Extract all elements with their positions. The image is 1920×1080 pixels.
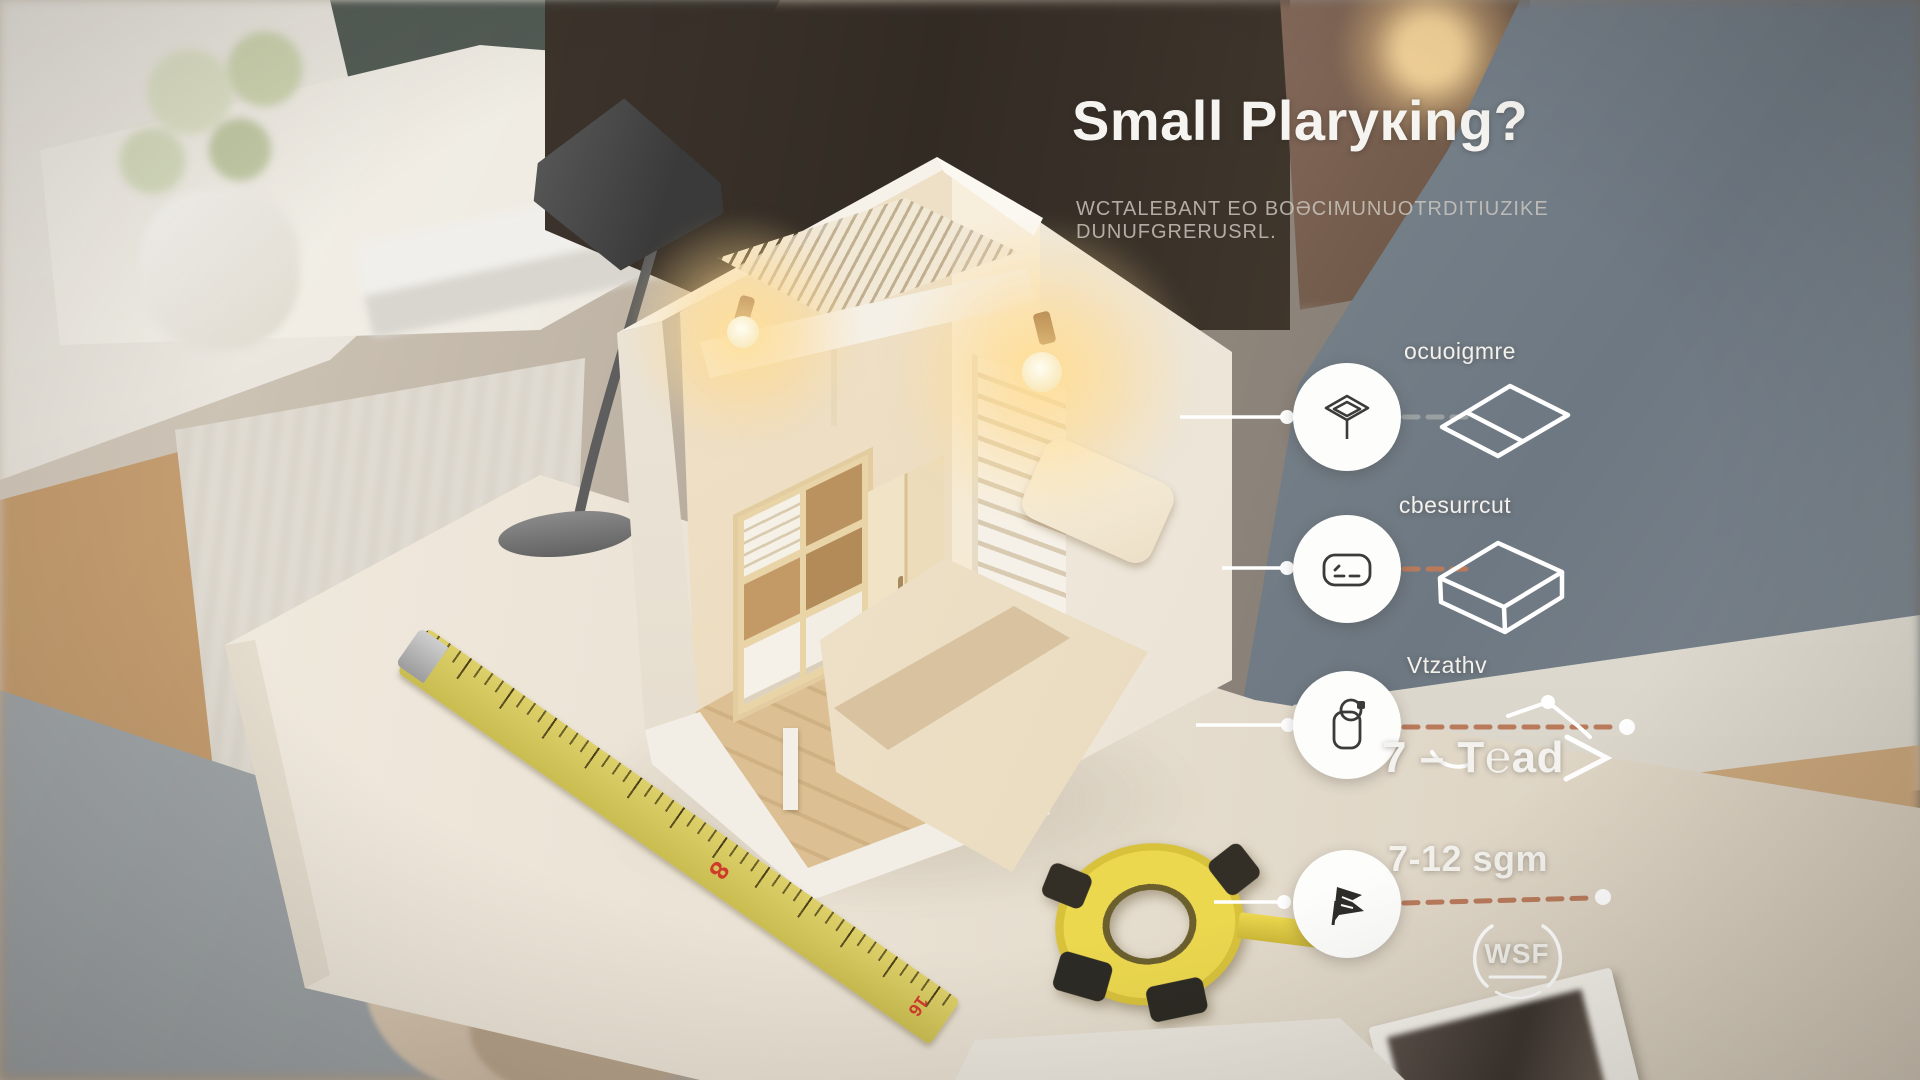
mattress-icon — [1316, 538, 1378, 600]
model-bulb-right — [1022, 352, 1062, 392]
annotation-label-2: cbesurrcut — [1330, 492, 1580, 519]
ruler-metal-tip — [396, 628, 449, 684]
annotation-circle-plan — [1293, 363, 1401, 471]
flag-icon — [1318, 875, 1376, 933]
infographic-scene: 8 16 — [0, 0, 1920, 1080]
photo-stack — [1368, 967, 1652, 1080]
annotation-label-1: ocuoigmre — [1335, 338, 1585, 365]
tape-black-stripe — [1206, 841, 1263, 899]
photo-image — [1387, 989, 1610, 1080]
annotation-label-3: Vtzathv — [1322, 652, 1572, 679]
model-bed-post — [783, 728, 798, 810]
floor-plan-outline — [1442, 386, 1568, 456]
tape-black-stripe — [1145, 976, 1209, 1023]
wardrobe-handle — [898, 575, 903, 593]
plant-pot — [140, 190, 300, 350]
page-subtitle: WCTALEBANT EO BOƏCIMUNUOTRDITIUZIKE DUNU… — [1076, 198, 1716, 244]
isometric-plan-icon — [1317, 387, 1377, 447]
annotation-value-dimension: 7 – T℮ad — [1382, 733, 1642, 783]
model-bulb-left — [727, 316, 759, 348]
page-title: Small Plaryкing? — [1072, 88, 1632, 153]
annotation-label-4: 7-12 sgm — [1338, 838, 1598, 880]
desk-lamp-base — [496, 505, 638, 563]
model-shelf-unit — [733, 447, 873, 723]
tag-icon — [1317, 695, 1377, 755]
annotation-circle-mattress — [1293, 515, 1401, 623]
badge-text: WSF — [1472, 938, 1562, 970]
tape-black-stripe — [1051, 950, 1114, 1003]
mattress-3d-outline — [1440, 543, 1562, 632]
dashed-end-dot — [1595, 889, 1611, 905]
ruler-end-number-red: 16 — [904, 992, 933, 1020]
ruler-number-red: 8 — [702, 855, 736, 885]
